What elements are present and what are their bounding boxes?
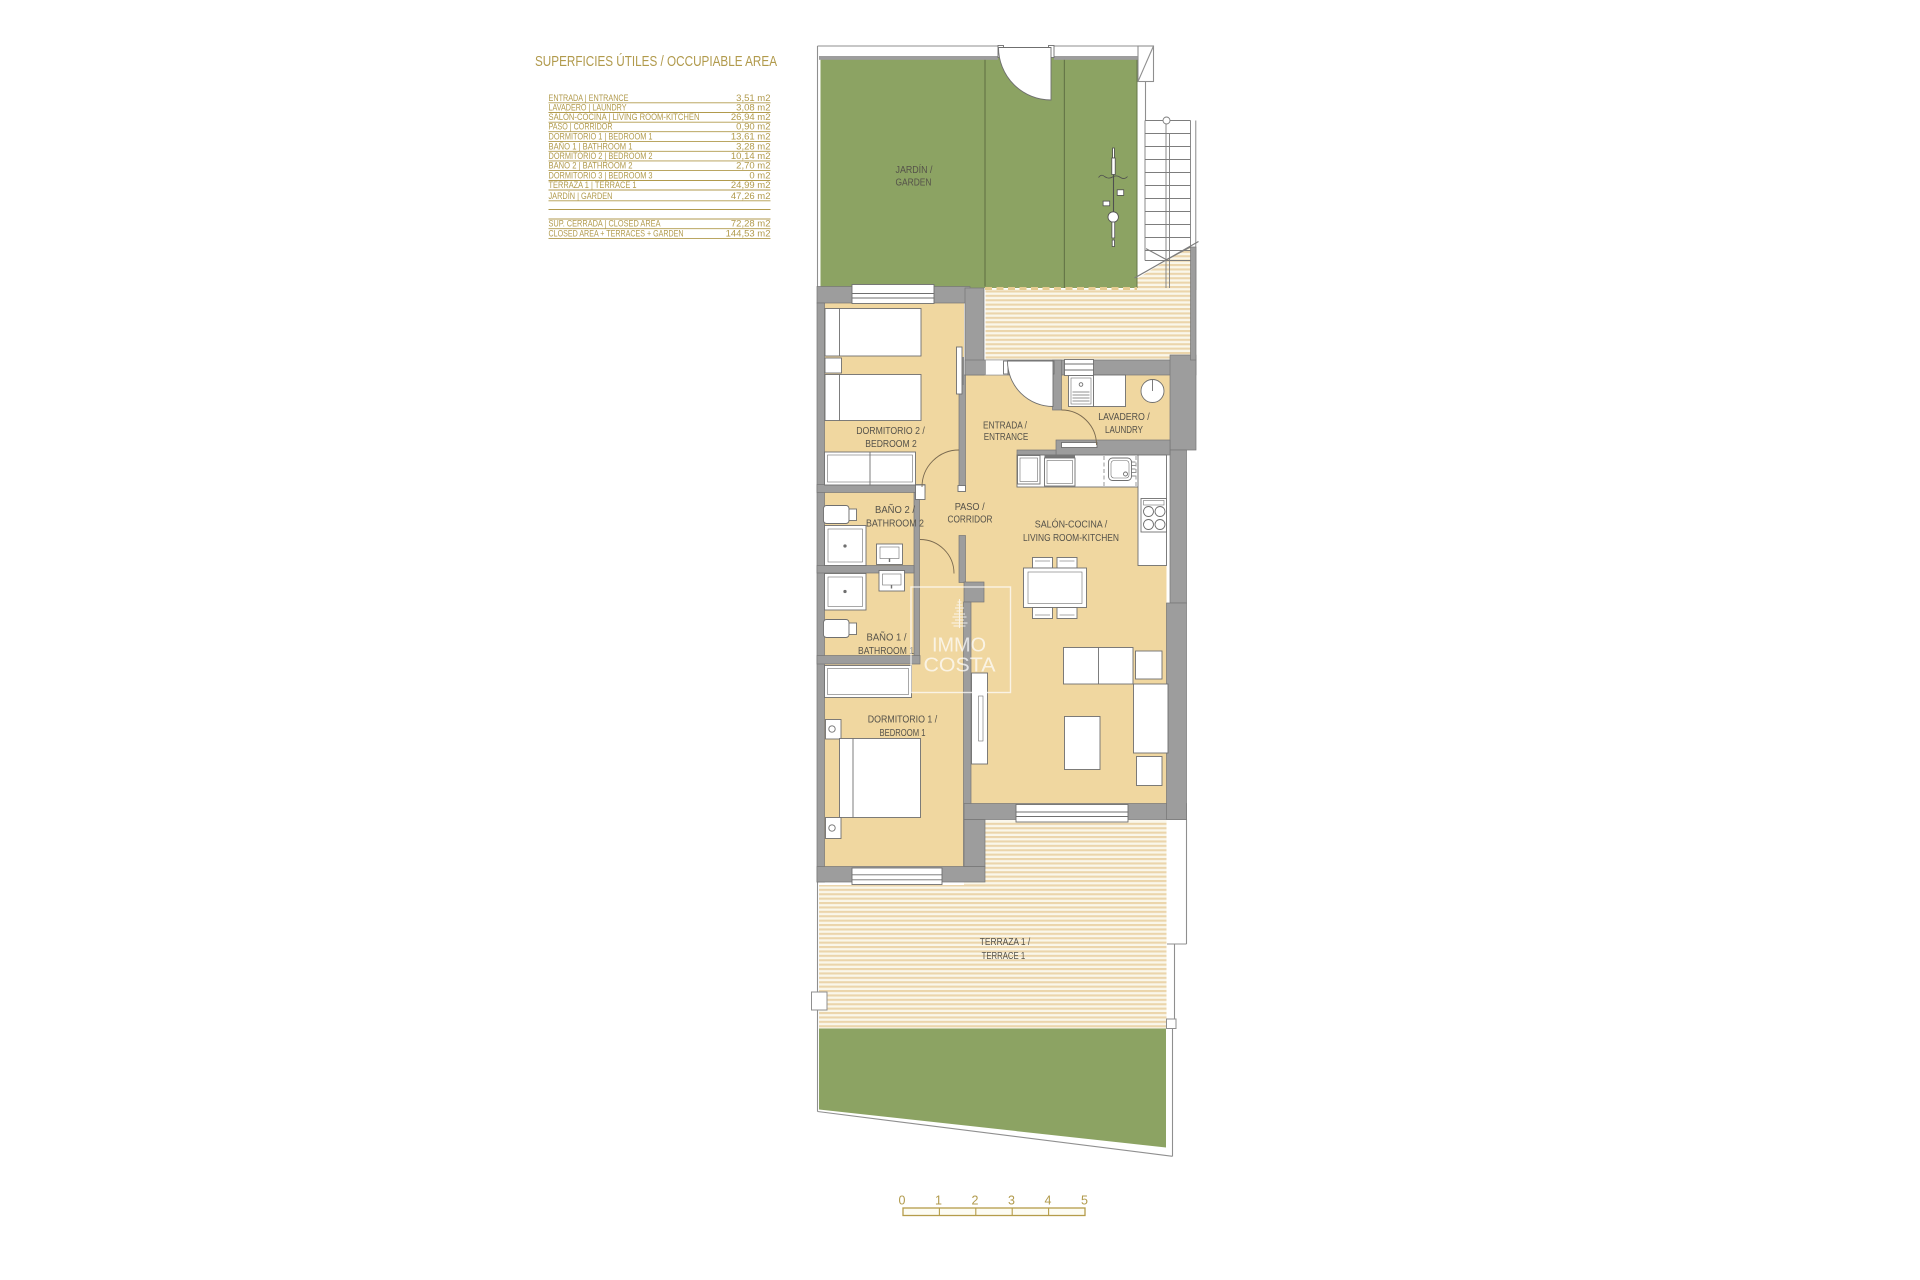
svg-text:SALÓN-COCINA /: SALÓN-COCINA / (1035, 517, 1108, 530)
svg-text:BEDROOM 1: BEDROOM 1 (880, 728, 926, 739)
svg-text:ENTRANCE: ENTRANCE (984, 432, 1029, 443)
svg-text:LAUNDRY: LAUNDRY (1105, 425, 1143, 436)
svg-text:3: 3 (1008, 1194, 1015, 1208)
svg-text:CORRIDOR: CORRIDOR (948, 515, 993, 526)
svg-text:2: 2 (972, 1194, 979, 1208)
svg-text:BATHROOM 1: BATHROOM 1 (858, 646, 914, 657)
svg-text:JARDÍN | GARDEN: JARDÍN | GARDEN (549, 191, 613, 202)
svg-text:BEDROOM 2: BEDROOM 2 (865, 439, 917, 450)
svg-text:CLOSED AREA + TERRACES + GARDE: CLOSED AREA + TERRACES + GARDEN (549, 228, 684, 239)
svg-text:TERRACE 1: TERRACE 1 (982, 951, 1026, 962)
svg-text:BATHROOM 2: BATHROOM 2 (866, 519, 924, 530)
svg-text:24,99 m2: 24,99 m2 (731, 180, 771, 191)
svg-text:DORMITORIO 2 /: DORMITORIO 2 / (856, 426, 925, 437)
svg-text:TERRAZA 1 | TERRACE 1: TERRAZA 1 | TERRACE 1 (549, 180, 637, 191)
svg-text:144,53 m2: 144,53 m2 (726, 228, 771, 239)
svg-text:TERRAZA 1 /: TERRAZA 1 / (980, 937, 1031, 948)
svg-text:BAÑO 2 /: BAÑO 2 / (875, 503, 915, 516)
svg-text:SUPERFICIES ÚTILES / OCCUPIABL: SUPERFICIES ÚTILES / OCCUPIABLE AREA (535, 53, 777, 70)
svg-text:GARDEN: GARDEN (896, 178, 932, 189)
svg-text:PASO /: PASO / (955, 502, 985, 513)
svg-text:DORMITORIO 1 /: DORMITORIO 1 / (868, 715, 938, 726)
svg-text:47,26 m2: 47,26 m2 (731, 191, 771, 202)
svg-text:4: 4 (1045, 1194, 1052, 1208)
svg-text:JARDÍN /: JARDÍN / (896, 163, 933, 176)
svg-text:COSTA: COSTA (924, 655, 997, 677)
svg-text:BAÑO 1 /: BAÑO 1 / (867, 631, 907, 644)
svg-text:IMMO: IMMO (932, 635, 986, 657)
svg-text:LAVADERO /: LAVADERO / (1098, 412, 1150, 423)
svg-text:ENTRADA /: ENTRADA / (983, 420, 1027, 431)
svg-text:5: 5 (1081, 1194, 1088, 1208)
svg-text:LIVING ROOM-KITCHEN: LIVING ROOM-KITCHEN (1023, 533, 1119, 544)
svg-text:1: 1 (935, 1194, 942, 1208)
svg-text:0: 0 (899, 1194, 906, 1208)
